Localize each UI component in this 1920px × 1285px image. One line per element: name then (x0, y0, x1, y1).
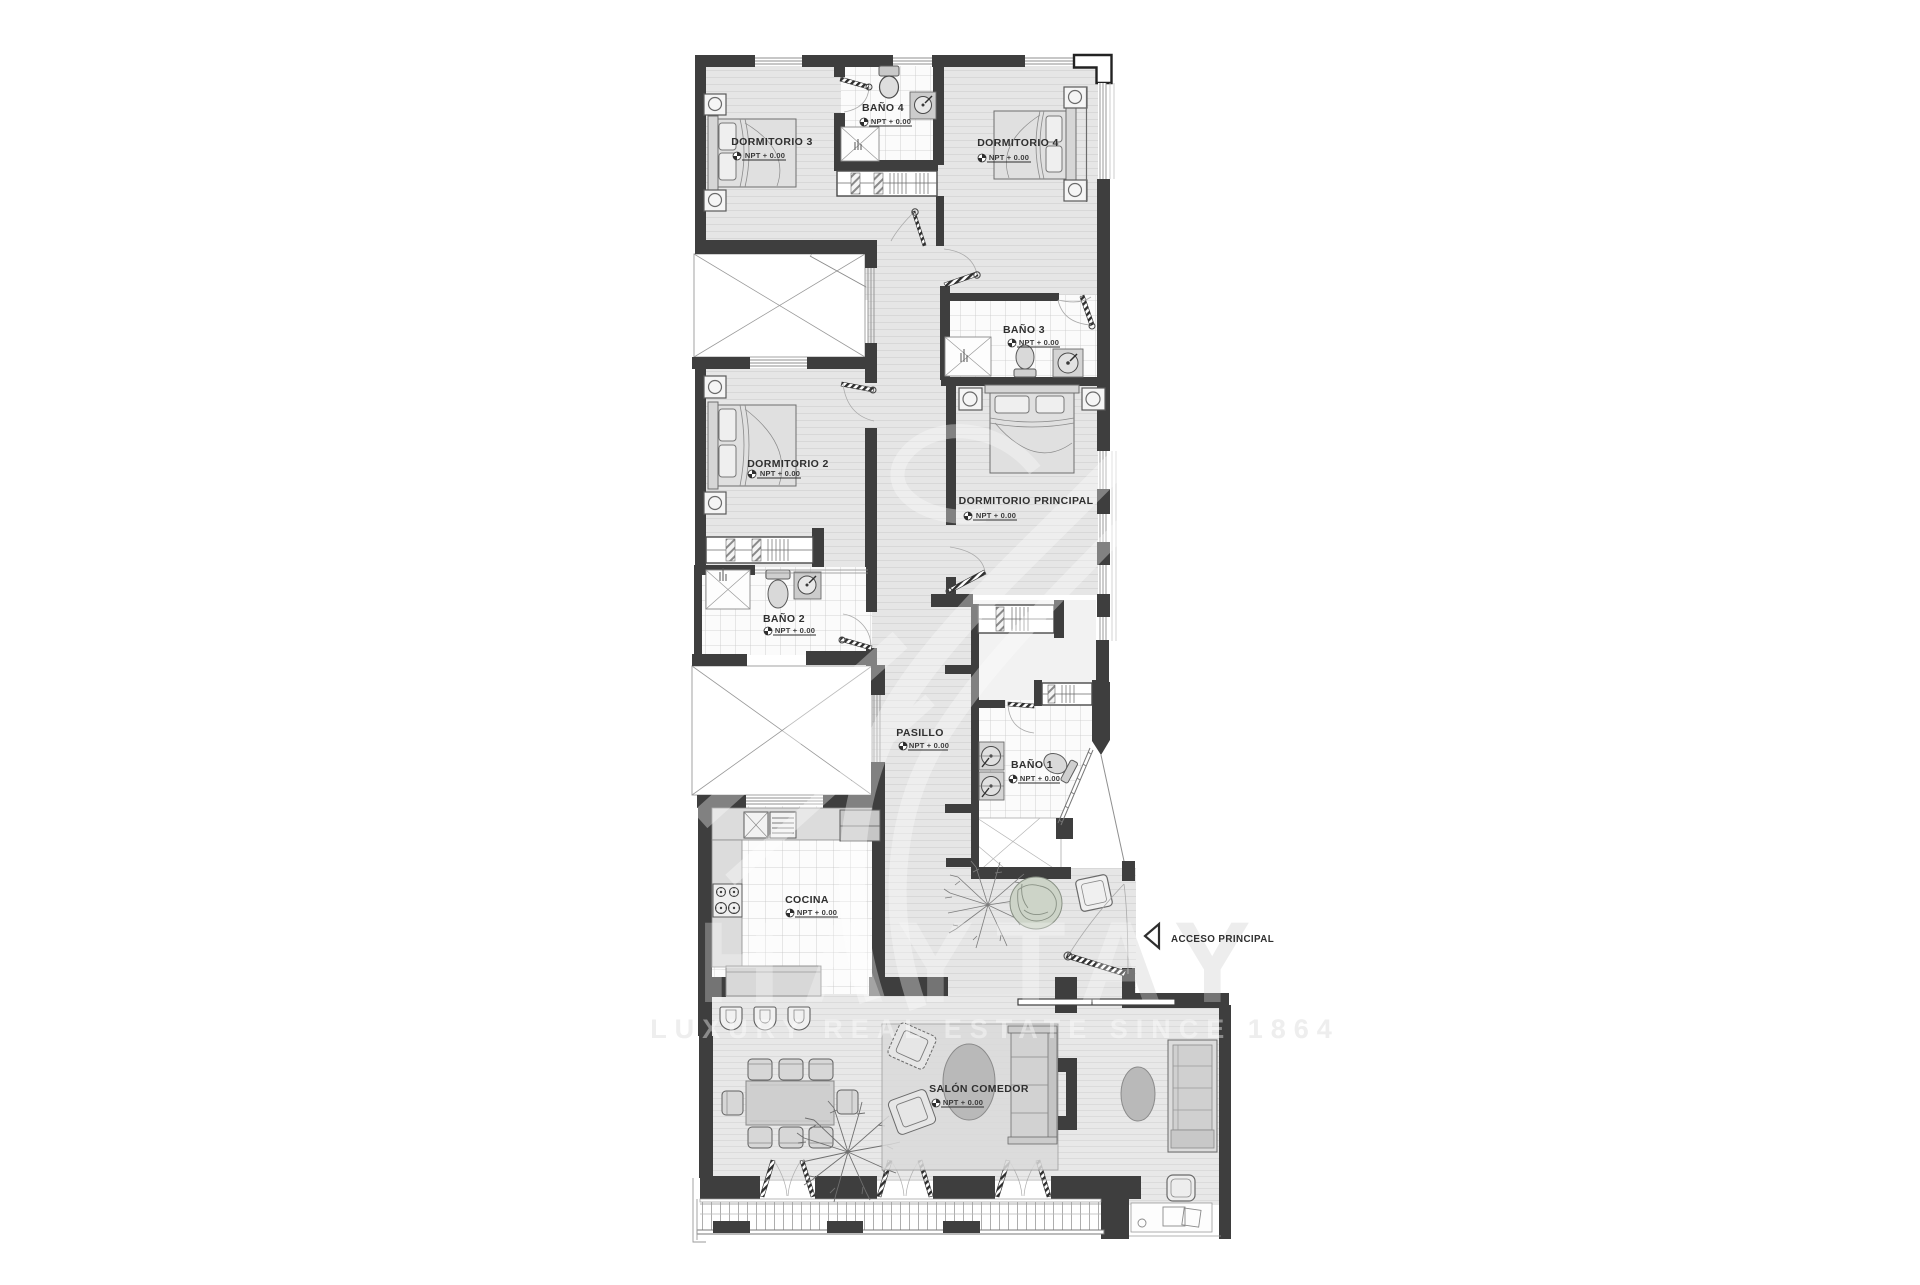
svg-text:NPT + 0.00: NPT + 0.00 (943, 1098, 983, 1107)
svg-text:BAÑO 3: BAÑO 3 (1003, 323, 1045, 336)
svg-text:NPT + 0.00: NPT + 0.00 (871, 117, 911, 126)
svg-text:DORMITORIO 4: DORMITORIO 4 (977, 137, 1059, 149)
svg-text:BAÑO 4: BAÑO 4 (862, 101, 904, 114)
svg-text:PASILLO: PASILLO (896, 727, 944, 739)
svg-text:BAÑO 1: BAÑO 1 (1011, 758, 1053, 771)
svg-text:NPT + 0.00: NPT + 0.00 (1019, 338, 1059, 347)
svg-text:DORMITORIO 3: DORMITORIO 3 (731, 136, 813, 148)
svg-text:NPT + 0.00: NPT + 0.00 (1020, 774, 1060, 783)
svg-text:HAYTAY: HAYTAY (697, 899, 1272, 1027)
svg-text:NPT + 0.00: NPT + 0.00 (976, 511, 1016, 520)
svg-text:DORMITORIO PRINCIPAL: DORMITORIO PRINCIPAL (959, 495, 1094, 507)
svg-text:NPT + 0.00: NPT + 0.00 (745, 151, 785, 160)
svg-text:NPT + 0.00: NPT + 0.00 (797, 908, 837, 917)
svg-text:COCINA: COCINA (785, 894, 829, 906)
svg-text:NPT + 0.00: NPT + 0.00 (775, 626, 815, 635)
svg-text:BAÑO 2: BAÑO 2 (763, 612, 805, 625)
svg-text:NPT + 0.00: NPT + 0.00 (760, 469, 800, 478)
svg-text:SALÓN COMEDOR: SALÓN COMEDOR (929, 1082, 1029, 1095)
svg-text:NPT + 0.00: NPT + 0.00 (989, 153, 1029, 162)
svg-text:ACCESO PRINCIPAL: ACCESO PRINCIPAL (1171, 934, 1274, 945)
svg-text:LUXURY REAL ESTATE SINCE 1864: LUXURY REAL ESTATE SINCE 1864 (650, 1014, 1340, 1044)
svg-text:NPT + 0.00: NPT + 0.00 (909, 741, 949, 750)
